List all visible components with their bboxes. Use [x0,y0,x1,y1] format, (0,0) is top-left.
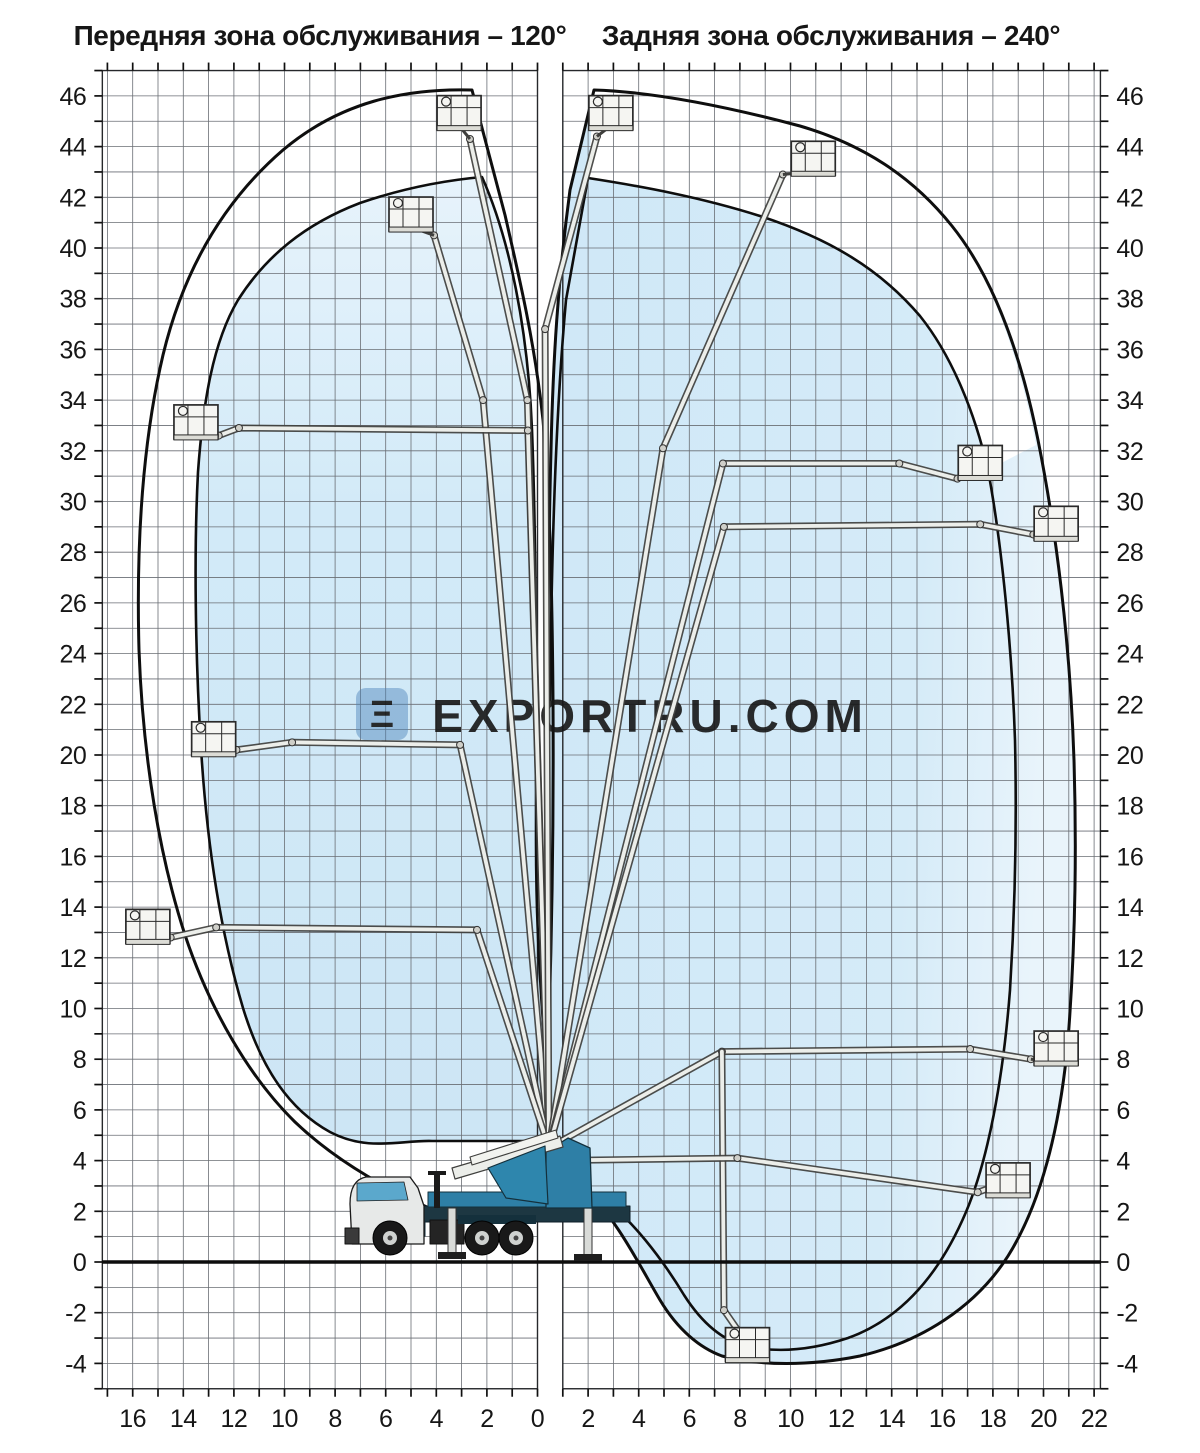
y-axis-label-right: 4 [1116,1148,1130,1176]
y-axis-label-right: 44 [1116,134,1143,162]
y-axis-label-left: -2 [65,1300,86,1328]
watermark: Ξ EXPORTRU.COM [356,688,868,742]
y-axis-label-right: 28 [1116,539,1143,567]
basket-icon [437,96,481,131]
y-axis-label-right: 18 [1116,793,1143,821]
y-axis-label-left: 6 [73,1097,86,1125]
x-axis-label-rear: 12 [828,1405,855,1433]
basket-icon [791,141,835,176]
y-axis-label-right: 16 [1116,843,1143,871]
y-axis-label-left: 4 [73,1148,87,1176]
y-axis-label-left: -4 [65,1350,87,1378]
y-axis-label-right: 42 [1116,184,1143,212]
y-axis-label-right: 30 [1116,489,1143,517]
y-axis-label-left: 8 [73,1046,86,1074]
x-axis-label-rear: 6 [683,1405,696,1433]
basket-icon [1034,506,1078,541]
y-axis-label-left: 22 [60,691,87,719]
x-axis-label-rear: 16 [929,1405,956,1433]
x-axis-label-front: 16 [119,1405,146,1433]
y-axis-label-right: 36 [1116,336,1143,364]
x-axis-label-front: 6 [379,1405,392,1433]
y-axis-label-right: 24 [1116,641,1143,669]
front-zone-title: Передняя зона обслуживания – 120° [74,20,567,51]
y-axis-label-right: 14 [1116,894,1143,922]
x-axis-label-front: 8 [328,1405,341,1433]
y-axis-label-right: 8 [1116,1046,1129,1074]
x-axis-label-front: 4 [430,1405,444,1433]
y-axis-label-right: -2 [1116,1300,1137,1328]
y-axis-label-left: 2 [73,1198,86,1226]
x-axis-label-rear: 18 [979,1405,1006,1433]
y-axis-label-right: 20 [1116,742,1143,770]
x-axis-label-front: 10 [271,1405,298,1433]
y-axis-label-left: 32 [60,438,87,466]
basket-icon [986,1163,1030,1198]
y-axis-label-left: 44 [60,134,87,162]
y-axis-label-left: 0 [73,1249,86,1277]
y-axis-label-left: 40 [60,235,87,263]
x-axis-label-rear: 20 [1030,1405,1057,1433]
y-axis-label-left: 36 [60,336,87,364]
y-axis-label-right: 32 [1116,438,1143,466]
rear-zone-title: Задняя зона обслуживания – 240° [602,20,1060,51]
truck-mast-bar [428,1171,446,1175]
y-axis-label-left: 20 [60,742,87,770]
y-axis-label-right: 40 [1116,235,1143,263]
y-axis-label-left: 24 [60,641,87,669]
basket-icon [192,722,236,757]
x-axis-label-front: 2 [480,1405,493,1433]
y-axis-label-right: 12 [1116,945,1143,973]
y-axis-label-left: 34 [60,387,87,415]
y-axis-label-right: 6 [1116,1097,1129,1125]
x-axis-label-front: 12 [220,1405,247,1433]
x-axis-label-rear: 14 [878,1405,905,1433]
watermark-logo-glyph: Ξ [370,694,394,736]
reach-diagram: Ξ EXPORTRU.COM [0,0,1200,1453]
y-axis-label-right: 38 [1116,286,1143,314]
y-axis-label-left: 42 [60,184,87,212]
y-axis-label-left: 18 [60,793,87,821]
watermark-text: EXPORTRU.COM [432,690,868,742]
y-axis-label-right: 46 [1116,83,1143,111]
y-axis-label-right: 0 [1116,1249,1129,1277]
basket-icon [389,197,433,232]
y-axis-label-left: 30 [60,489,87,517]
y-axis-label-left: 12 [60,945,87,973]
x-axis-label-rear: 22 [1081,1405,1108,1433]
y-axis-label-right: 2 [1116,1198,1129,1226]
basket-icon [589,96,633,131]
y-axis-label-left: 46 [60,83,87,111]
basket-icon [1034,1031,1078,1066]
y-axis-label-right: -4 [1116,1350,1138,1378]
x-axis-label-rear: 2 [581,1405,594,1433]
basket-icon [958,445,1002,480]
y-axis-label-right: 34 [1116,387,1143,415]
y-axis-label-left: 16 [60,843,87,871]
truck [345,1130,630,1261]
y-axis-label-right: 22 [1116,691,1143,719]
truck-mast [434,1172,440,1208]
basket-icon [174,405,218,440]
basket-icon [126,909,170,944]
y-axis-label-right: 26 [1116,590,1143,618]
x-axis-label-front: 0 [531,1405,544,1433]
x-axis-label-rear: 4 [632,1405,646,1433]
truck-bumper [345,1228,359,1244]
y-axis-label-left: 26 [60,590,87,618]
y-axis-label-left: 38 [60,286,87,314]
front-zone-fill [196,177,546,1144]
titles: Передняя зона обслуживания – 120° Задняя… [74,20,1061,51]
basket-icon [725,1328,769,1363]
y-axis-label-left: 14 [60,894,87,922]
y-axis-label-left: 28 [60,539,87,567]
truck-cab-window [357,1182,408,1201]
y-axis-label-left: 10 [60,996,87,1024]
x-axis-label-rear: 10 [777,1405,804,1433]
diagram-canvas: Ξ EXPORTRU.COM [0,0,1200,1453]
x-axis-label-rear: 8 [733,1405,746,1433]
x-axis-label-front: 14 [170,1405,197,1433]
y-axis-label-right: 10 [1116,996,1143,1024]
